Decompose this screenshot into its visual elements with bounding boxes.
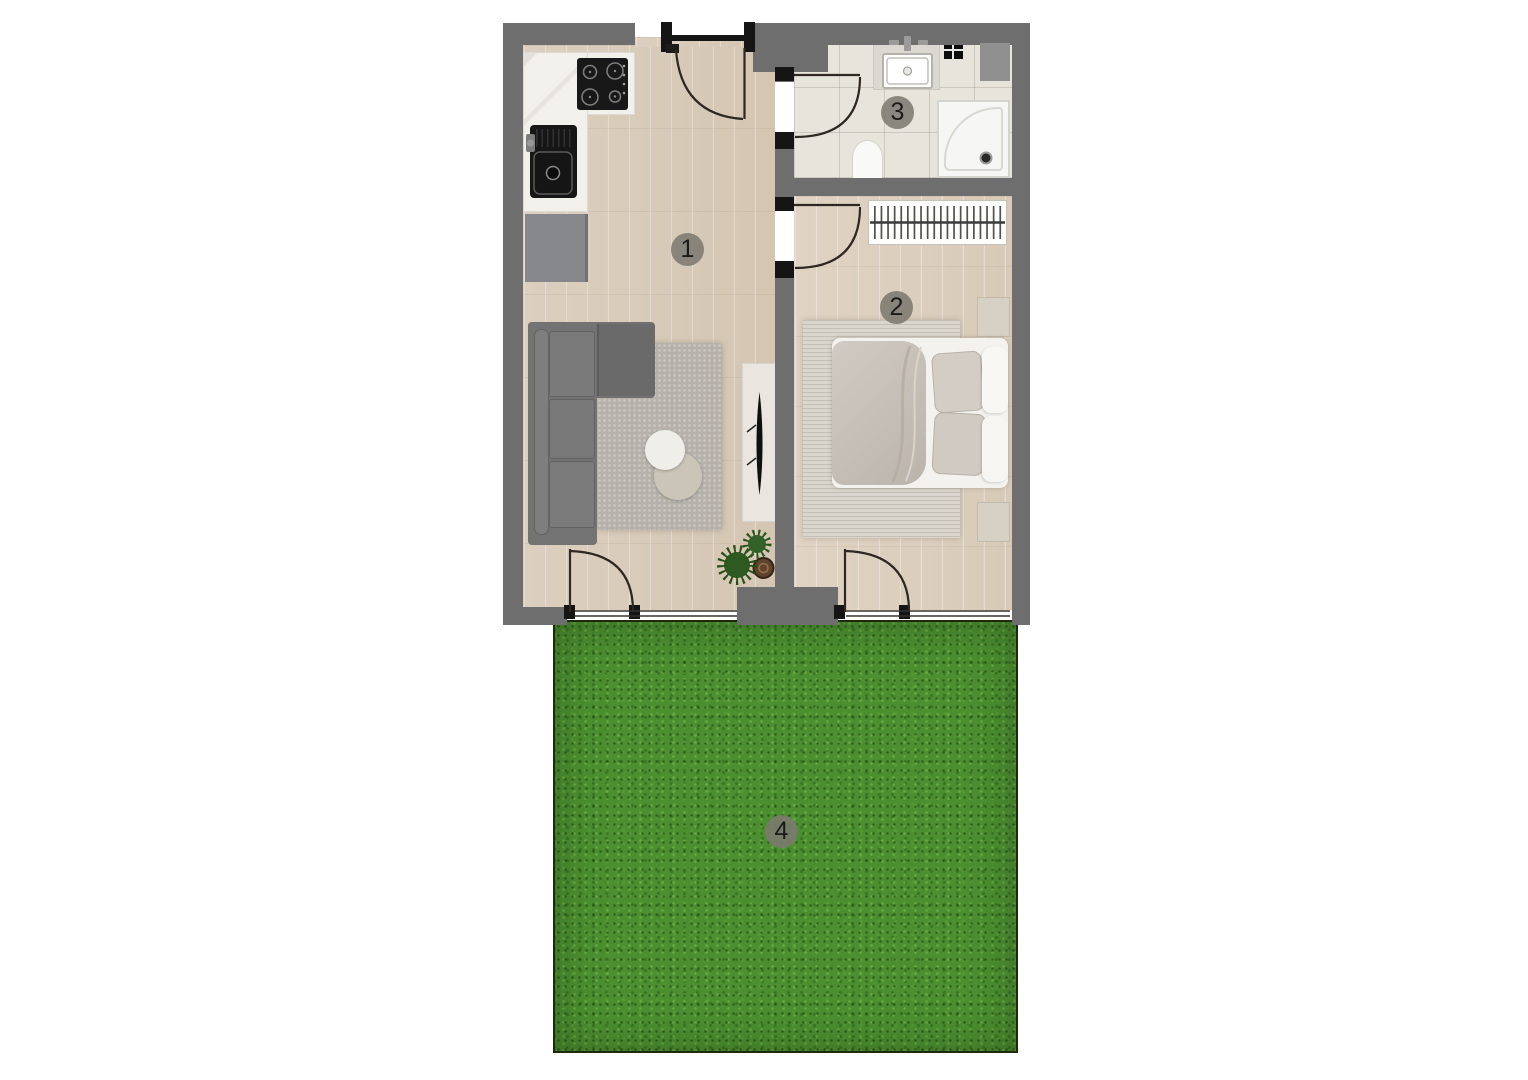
- shower-inner-line: [944, 107, 1003, 171]
- wardrobe: [868, 200, 1007, 245]
- wall-bathroom-corner: [753, 45, 828, 72]
- nightstand: [977, 502, 1010, 542]
- room-label-bedroom: 2: [880, 291, 913, 324]
- wall-partition: [775, 72, 794, 82]
- entry-threshold-floor: [635, 37, 753, 47]
- room-label-bathroom: 3: [881, 96, 914, 129]
- bedroom-window: [846, 611, 1010, 616]
- wall-partition: [775, 268, 794, 590]
- bathroom-sink-icon: [882, 53, 933, 89]
- sofa-seat-cushion: [549, 399, 595, 459]
- sofa-chaise: [597, 324, 655, 396]
- nightstand: [977, 297, 1010, 337]
- wall-bottom-left: [503, 607, 567, 625]
- wall-bathroom-bottom: [794, 178, 1030, 196]
- kitchen-cabinet: [525, 214, 588, 282]
- wall-top-right: [753, 23, 1030, 45]
- tv-sideboard: [742, 363, 777, 522]
- shaft-duct: [980, 43, 1010, 81]
- wall-pillar: [737, 587, 838, 625]
- wall-partition: [775, 138, 794, 202]
- pillow-gray: [931, 412, 986, 477]
- bed-blanket: [832, 341, 926, 485]
- living-window: [575, 611, 737, 616]
- wall-right: [1012, 23, 1030, 625]
- sofa-seat-cushion: [549, 461, 595, 528]
- shower-tray-icon: [937, 100, 1010, 178]
- vent-grid-icon: [944, 43, 963, 59]
- coffee-table-white: [645, 430, 685, 470]
- room-label-garden: 4: [765, 815, 798, 848]
- kitchen-sink-icon: [530, 125, 577, 198]
- sofa-back-cushion: [534, 329, 549, 535]
- cooktop-icon: [577, 58, 628, 110]
- wall-left: [503, 23, 523, 625]
- floor-plan: 1 2 3 4: [0, 0, 1528, 1080]
- sofa-seat-cushion: [549, 331, 595, 397]
- pillow-gray: [931, 350, 985, 413]
- pillow-white: [982, 416, 1008, 482]
- pillow-white: [982, 347, 1008, 413]
- room-label-living: 1: [671, 233, 704, 266]
